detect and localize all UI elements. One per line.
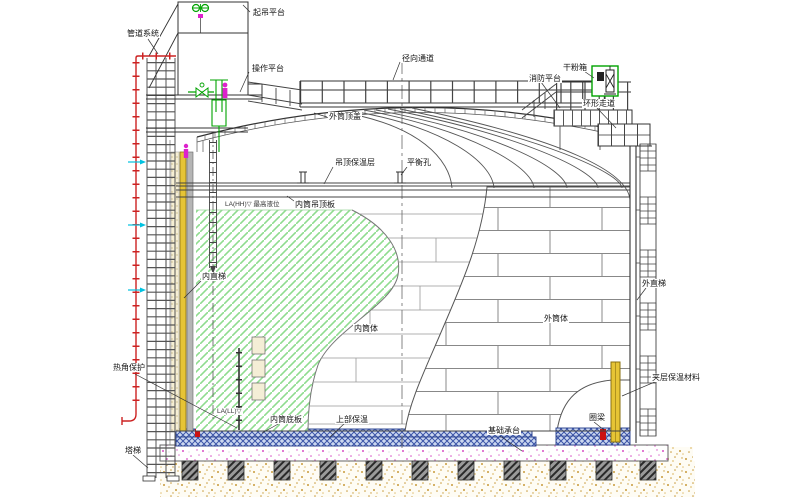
inner-tank-interior xyxy=(196,210,399,431)
label-dry-powder-box: 干粉箱 xyxy=(562,63,588,72)
foundation-slab xyxy=(160,445,668,461)
roof-walkway xyxy=(300,81,606,107)
drawing-linework xyxy=(0,0,800,500)
label-low-liquid-level: LA(LL)▽ xyxy=(216,408,243,415)
tank-section-drawing: 管道系统 起吊平台 操作平台 外筒顶盖 径向通道 消防平台 干粉箱 环形走道 吊… xyxy=(0,0,800,500)
label-foundation-pile-cap: 基础承台 xyxy=(487,426,521,435)
interlayer-insulation-strip xyxy=(611,362,620,442)
label-piping-system: 管道系统 xyxy=(126,29,160,38)
label-fire-platform: 消防平台 xyxy=(528,74,562,83)
label-radial-walkway: 径向通道 xyxy=(401,54,435,63)
bottom-insulation-strips xyxy=(176,429,536,446)
label-outer-shell: 外筒体 xyxy=(543,314,569,323)
flow-arrow-icons xyxy=(128,160,146,293)
hoist-frame xyxy=(146,2,262,132)
dry-powder-box xyxy=(592,66,618,96)
label-high-liquid-level: LA(HH)▽ 最高液位 xyxy=(224,201,280,208)
walkway-left-stair xyxy=(248,82,302,110)
label-outer-ladder: 外直梯 xyxy=(641,279,667,288)
label-ring-beam: 圈梁 xyxy=(588,413,606,422)
label-inner-shell: 内筒体 xyxy=(353,324,379,333)
label-lifting-platform: 起吊平台 xyxy=(252,8,286,17)
label-thermal-corner-protection: 热角保护 xyxy=(112,363,146,372)
ring-walkway-structure xyxy=(598,124,650,146)
label-inner-ceiling-plate: 内筒吊顶板 xyxy=(294,200,336,209)
outer-shell-brickwork xyxy=(405,187,630,431)
outer-ladder xyxy=(636,144,656,436)
label-inner-ladder: 内直梯 xyxy=(201,272,227,281)
label-interlayer-insulation: 夹层保温材料 xyxy=(651,373,701,382)
label-inner-bottom-plate: 内筒底板 xyxy=(269,415,303,424)
hoist-hook-icon xyxy=(192,4,209,33)
label-ring-walkway: 环形走道 xyxy=(582,99,616,108)
label-tower-ladder: 塔梯 xyxy=(124,446,142,455)
label-outer-shell-roof: 外筒顶盖 xyxy=(328,112,362,121)
label-ceiling-insulation: 吊顶保温层 xyxy=(334,158,376,167)
label-operation-platform: 操作平台 xyxy=(251,64,285,73)
label-balance-hole: 平衡孔 xyxy=(406,158,432,167)
label-upper-insulation: 上部保温 xyxy=(335,415,369,424)
